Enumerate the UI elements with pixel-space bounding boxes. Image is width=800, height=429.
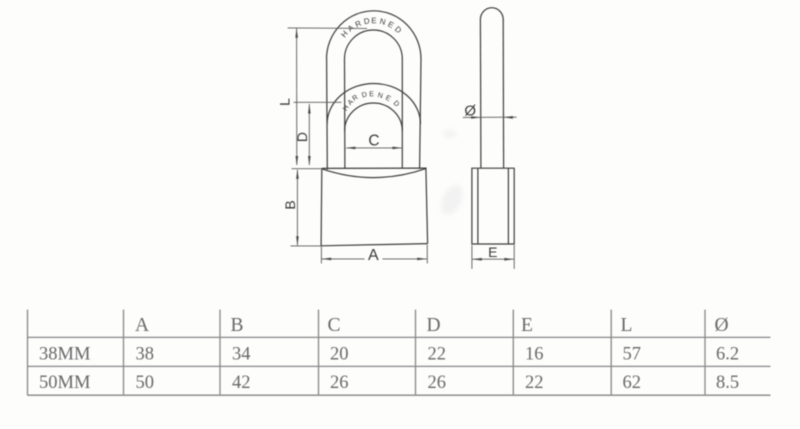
svg-text:D: D [393, 25, 403, 36]
svg-text:E: E [371, 16, 376, 25]
svg-text:D: D [294, 132, 310, 142]
svg-text:L: L [621, 315, 633, 336]
svg-text:D: D [360, 89, 368, 99]
svg-text:E: E [386, 20, 395, 30]
svg-text:38: 38 [136, 345, 155, 365]
svg-text:D: D [392, 98, 402, 108]
svg-text:Ø: Ø [715, 315, 729, 336]
svg-text:22: 22 [525, 373, 544, 393]
svg-text:B: B [282, 200, 298, 209]
svg-text:62: 62 [623, 373, 642, 393]
svg-text:16: 16 [525, 345, 544, 365]
svg-text:42: 42 [232, 373, 251, 393]
svg-text:E: E [369, 89, 375, 98]
svg-text:D: D [363, 16, 371, 26]
svg-text:8.5: 8.5 [716, 373, 739, 393]
svg-text:L: L [277, 98, 293, 106]
svg-text:C: C [368, 133, 379, 150]
svg-text:6.2: 6.2 [716, 345, 739, 365]
svg-text:34: 34 [232, 345, 251, 365]
svg-text:E: E [521, 315, 533, 336]
svg-text:38MM: 38MM [39, 345, 90, 365]
svg-text:20: 20 [330, 345, 349, 365]
svg-text:E: E [488, 244, 497, 260]
svg-text:A: A [368, 247, 379, 264]
svg-text:N: N [377, 90, 384, 100]
svg-text:R: R [354, 19, 363, 30]
svg-text:26: 26 [330, 373, 349, 393]
svg-text:50: 50 [136, 373, 155, 393]
svg-text:C: C [328, 315, 341, 336]
svg-text:N: N [379, 17, 387, 27]
svg-text:22: 22 [428, 345, 447, 365]
svg-text:Ø: Ø [464, 103, 476, 120]
svg-text:E: E [384, 93, 393, 103]
svg-text:50MM: 50MM [39, 373, 90, 393]
svg-text:D: D [427, 315, 441, 336]
svg-text:B: B [231, 315, 244, 336]
svg-text:A: A [135, 315, 149, 336]
svg-text:26: 26 [428, 373, 447, 393]
svg-text:57: 57 [623, 345, 642, 365]
